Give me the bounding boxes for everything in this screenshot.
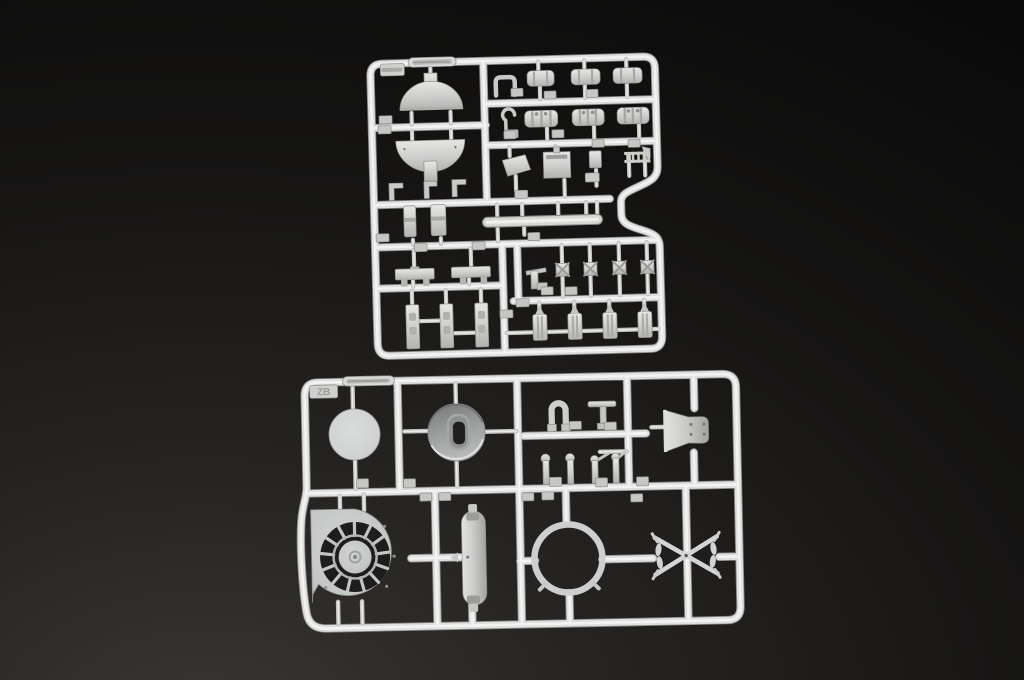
svg-text:ZB: ZB [317, 387, 331, 398]
